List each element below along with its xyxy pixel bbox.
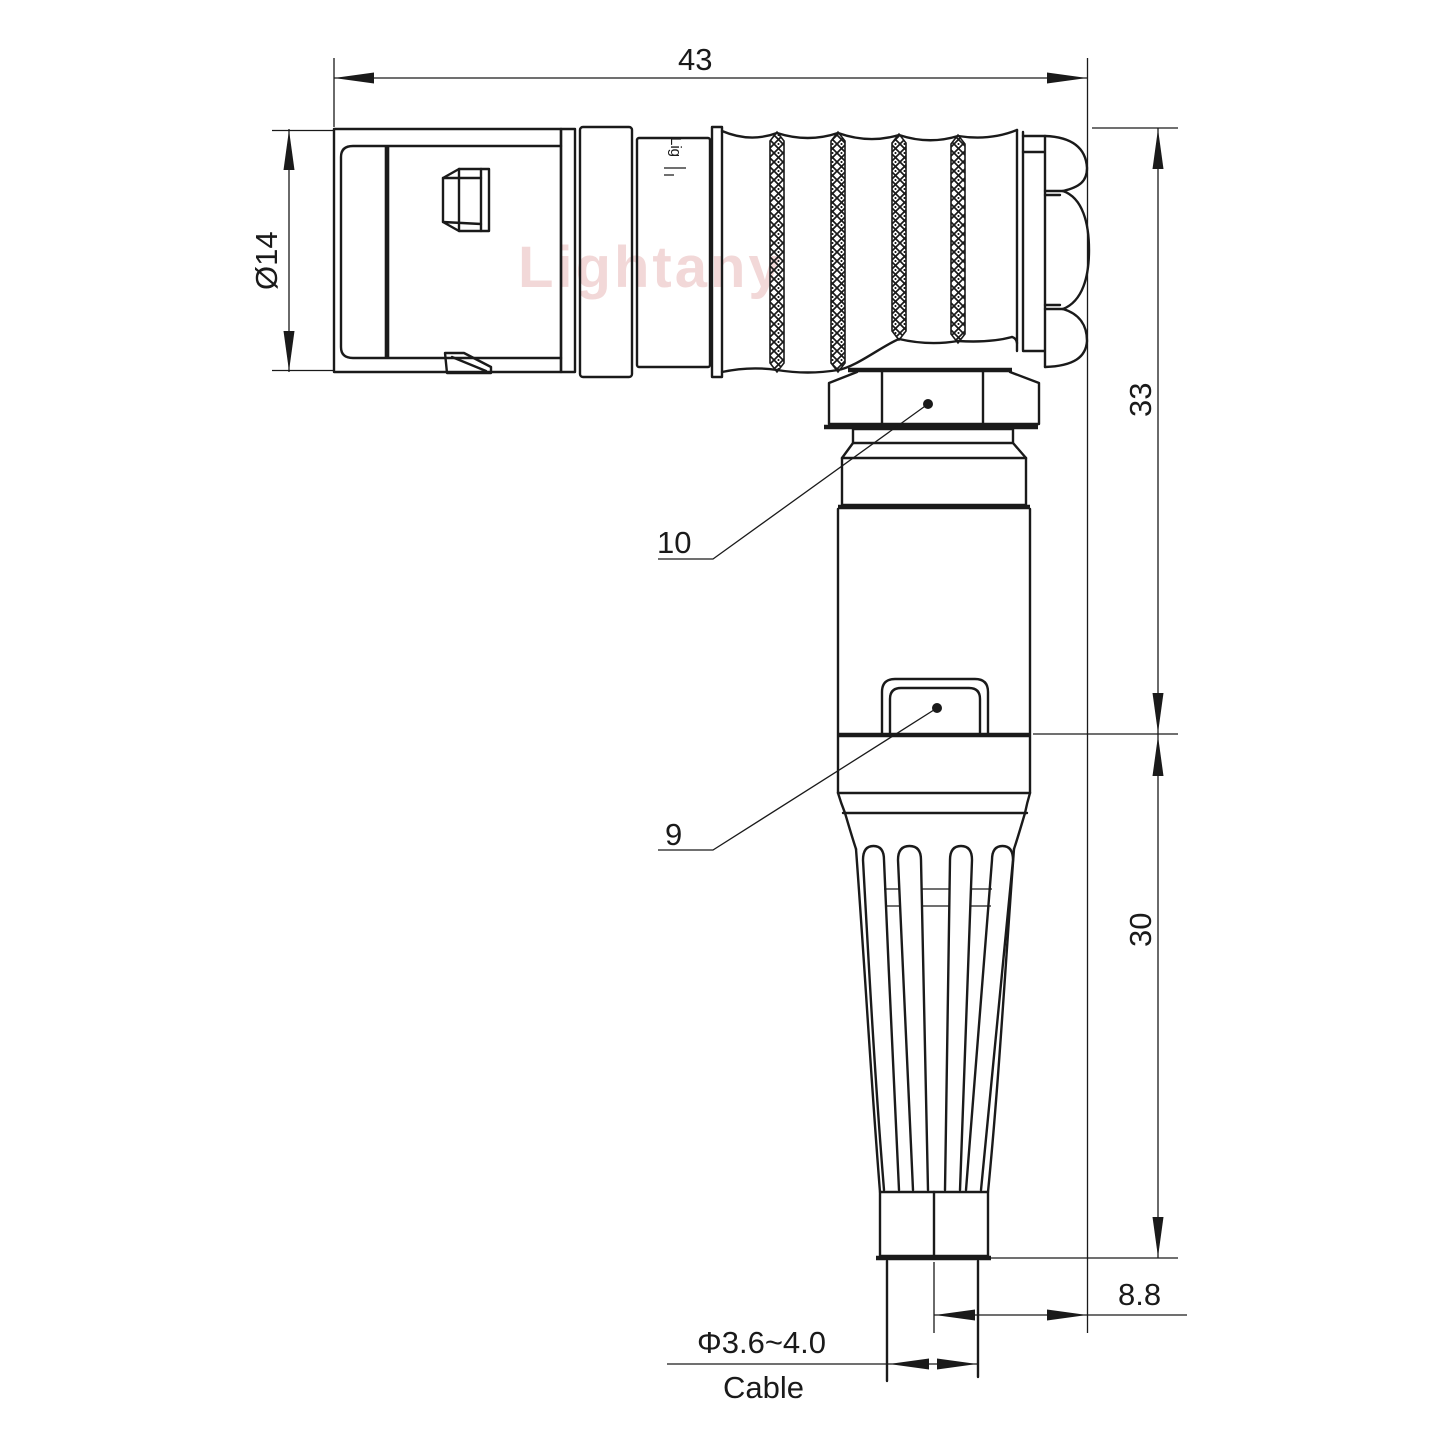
watermark-text: Lightany — [518, 235, 784, 300]
dim-14-text: Ø14 — [249, 231, 284, 290]
body-marking-underline — [664, 168, 686, 175]
dimension-height-upper: 33 — [1033, 128, 1178, 734]
technical-drawing-page: Lightany Lig — [0, 0, 1440, 1440]
leader-9-text: 9 — [665, 817, 682, 852]
dimension-cable-diameter: Φ3.6~4.0 Cable — [667, 1325, 978, 1405]
dimension-cable-offset: 8.8 — [934, 1262, 1187, 1333]
connector-elbow-body — [824, 370, 1039, 1381]
dim-33-text: 33 — [1123, 383, 1158, 417]
body-marking-text: Lig — [667, 137, 684, 157]
connector-side-view: Lig — [334, 127, 1089, 377]
rear-nut — [1023, 136, 1089, 367]
leader-housing-latch: 9 — [658, 703, 942, 852]
knurl-strip — [831, 132, 845, 372]
dim-8-8-text: 8.8 — [1118, 1277, 1161, 1312]
latch-window — [443, 169, 489, 231]
cable-ferrule — [876, 1192, 991, 1258]
dimension-front-diameter: Ø14 — [249, 129, 334, 372]
dim-43-text: 43 — [678, 42, 712, 77]
bottom-wedge-clip — [445, 353, 491, 373]
main-housing — [838, 509, 1030, 813]
dim-cable-diameter-text: Φ3.6~4.0 — [697, 1325, 826, 1360]
knurl-strip — [951, 135, 965, 343]
connector-drawing: Lightany Lig — [0, 0, 1440, 1440]
knurl-strip — [892, 134, 906, 340]
cable-label: Cable — [723, 1370, 804, 1405]
upper-sleeve — [842, 458, 1026, 505]
strain-relief-boot — [838, 793, 1030, 1192]
flare — [842, 443, 1026, 458]
dim-30-text: 30 — [1123, 913, 1158, 947]
leader-10-text: 10 — [657, 525, 691, 560]
hex-nut — [829, 372, 1039, 424]
knurl-strip — [770, 132, 784, 372]
